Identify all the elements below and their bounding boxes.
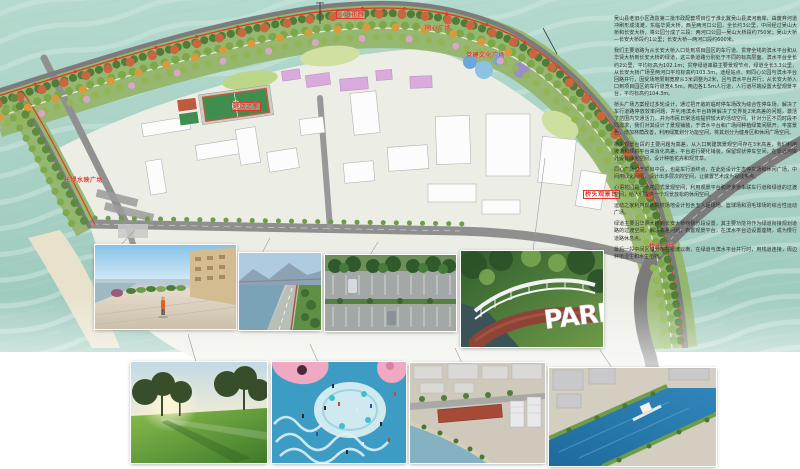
design-board: 心语花园 同心广场 党建文化广场 运动之家 长堤水映广场 桥头观景台 桥头广场 … <box>0 0 800 469</box>
description-paragraph: 同心广场位于项目中段，也是车行道终点，在此处设计生态停车场和休闲广场，中间用绿化… <box>614 167 797 181</box>
description-paragraph: 最后一段中间区域分布在银滩以南，在绿道与滨水平台并行时，用栈道连接，周边种植湿生… <box>614 247 797 261</box>
description-paragraph: 桥头广场方案经过多轮设计，通过把开敞的临时停车场改为综合性停车场，解决了车行道路… <box>614 102 797 137</box>
description-paragraph: 吴山县老旧小区改造第二批市政配套项目位于淮北翼吴山县滨河南岸，由废弃河道冲刷形成… <box>614 16 797 44</box>
label-dangjian-square: 党建文化广场 <box>466 52 505 59</box>
description-paragraph: 桥头观景台段的主要问题为高差，从入口到建筑景观空间存在3米高差，我们利用坡道和倾… <box>614 142 797 163</box>
description-paragraph: 运动之家利用现状院校场地设计包含五人足球场、篮球场和羽毛球场的综合性运动广场。 <box>614 203 797 217</box>
label-tongxin-square: 同心广场 <box>425 25 451 32</box>
label-xinyu-garden: 心语花园 <box>336 10 366 19</box>
photo-park-gateway: PARK <box>461 251 603 347</box>
description-paragraph: 我们主要道路为从长安大桥入口处到项目园区的车行道、贯穿全线的滨水平台和从华贤大桥… <box>614 48 797 98</box>
photo-riverside-promenade <box>95 245 236 329</box>
photo-riverside-road <box>239 253 321 330</box>
photo-canal-aerial <box>549 368 716 466</box>
description-paragraph: 心语花园是一个花园式景观空间，利用观景平台和游步道串联车行道和绿道的过渡空间，给… <box>614 185 797 199</box>
label-sports-home: 运动之家 <box>231 102 261 111</box>
photo-water-playground <box>272 362 406 463</box>
description-paragraph: 绿道主要沿华贤大桥到长安大桥两侧分段设置，其主要功能将作为绿道衔接规划道路的过渡… <box>614 221 797 242</box>
description-panel: 吴山县老旧小区改造第二批市政配套项目位于淮北翼吴山县滨河南岸，由废弃河道冲刷形成… <box>614 16 797 265</box>
photo-parking-lot <box>325 255 456 331</box>
label-changdi-square: 长堤水映广场 <box>64 177 103 184</box>
photo-sunset-lawn <box>131 362 267 463</box>
photo-waterfront-buildings <box>410 363 545 463</box>
